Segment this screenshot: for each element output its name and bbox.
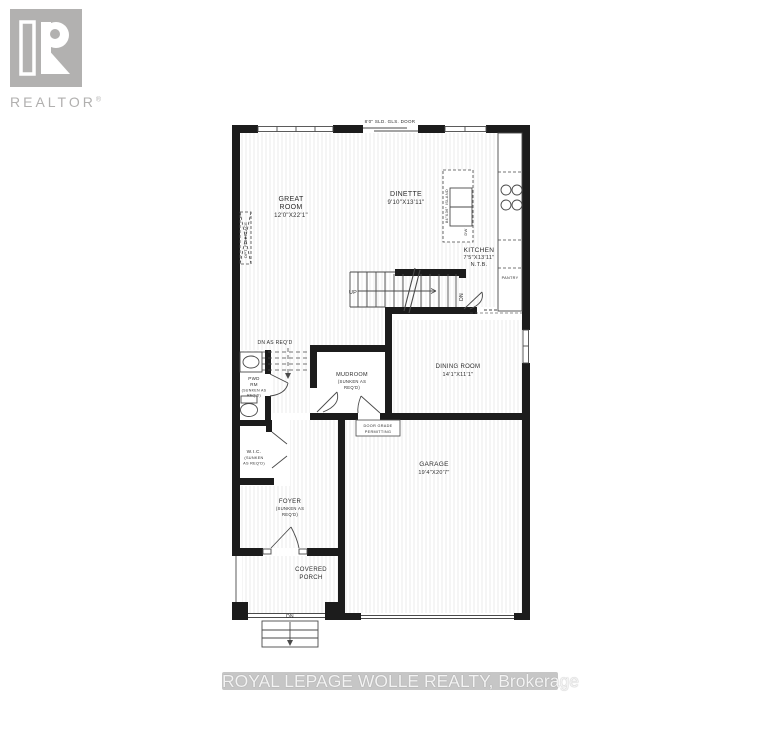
window-kitchen — [445, 127, 486, 132]
pantry-label: PANTRY — [502, 276, 519, 280]
mudroom-note: REQ'D) — [344, 385, 360, 390]
garage-dims: 19'4"X20'7" — [418, 470, 449, 476]
opt-fireplace-label: OPT. FIREPLACE — [243, 222, 248, 258]
sidelight — [299, 549, 307, 554]
mudroom-door — [317, 392, 338, 412]
floorplan-page: REALTOR® — [0, 0, 768, 742]
toilet-bowl — [241, 404, 258, 417]
patio-door-note: 8'0" SLD. GLS. DOOR — [365, 119, 416, 124]
mudroom-note: (SUNKEN AS — [338, 379, 366, 384]
door-grade-label: DOOR GRADE — [364, 424, 393, 428]
powder-room-label: RM — [250, 382, 258, 387]
powder-room-note: (SUNKEN AS — [242, 389, 267, 393]
porch-dn-label: DN — [286, 614, 294, 620]
brokerage-watermark: ROYAL LEPAGE WOLLE REALTY, Brokerage — [222, 672, 558, 690]
dinette-label: DINETTE — [390, 191, 422, 198]
window-great-room — [258, 127, 333, 132]
mudroom-garage-door — [358, 396, 380, 413]
covered-porch-label: COVERED — [295, 567, 327, 573]
powder-room-label: PWD — [248, 376, 260, 381]
mudroom-label: MUDROOM — [336, 372, 368, 378]
wic-note: AS REQ'D) — [243, 462, 265, 466]
dishwasher-label: DW — [463, 228, 468, 235]
sink — [243, 356, 259, 368]
foyer-note: REQ'D) — [282, 512, 298, 517]
great-room-label: ROOM — [280, 204, 303, 211]
kitchen-dims: 7'5"X13'11" — [464, 255, 495, 261]
kitchen-label: KITCHEN — [464, 247, 495, 254]
dining-room-label: DINING ROOM — [436, 364, 481, 370]
powder-room-note: REQ'D) — [247, 394, 261, 398]
kitchen-note: N.T.B. — [471, 262, 488, 268]
great-room-label: GREAT — [278, 196, 304, 203]
window-dining — [523, 330, 529, 363]
floor-plan: 8'0" SLD. GLS. DOOR GREAT ROOM 12'0"X22'… — [0, 0, 768, 742]
kitchen-counter — [498, 133, 522, 311]
covered-porch-label: PORCH — [299, 575, 322, 581]
foyer-note: (SUNKEN AS — [276, 506, 304, 511]
door-grade-label: PERMITTING — [365, 430, 391, 434]
foyer-label: FOYER — [279, 499, 302, 505]
dn-as-reqd-label: DN AS REQ'D — [257, 340, 292, 346]
stairs-dn-label: DN — [459, 293, 465, 301]
island-label: 84"X36" ISLAND — [444, 189, 449, 223]
dining-room-dims: 14'1"X11'1" — [443, 372, 474, 378]
sidelight — [263, 549, 271, 554]
garage-label: GARAGE — [419, 461, 449, 468]
wic-note: (SUNKEN — [244, 456, 263, 460]
wic-opening — [272, 432, 287, 468]
great-room-dims: 12'0"X22'1" — [274, 213, 308, 219]
wic-label: W.I.C. — [247, 449, 262, 455]
dinette-dims: 9'10"X13'11" — [387, 200, 424, 206]
stairs-up-label: UP — [349, 290, 357, 296]
